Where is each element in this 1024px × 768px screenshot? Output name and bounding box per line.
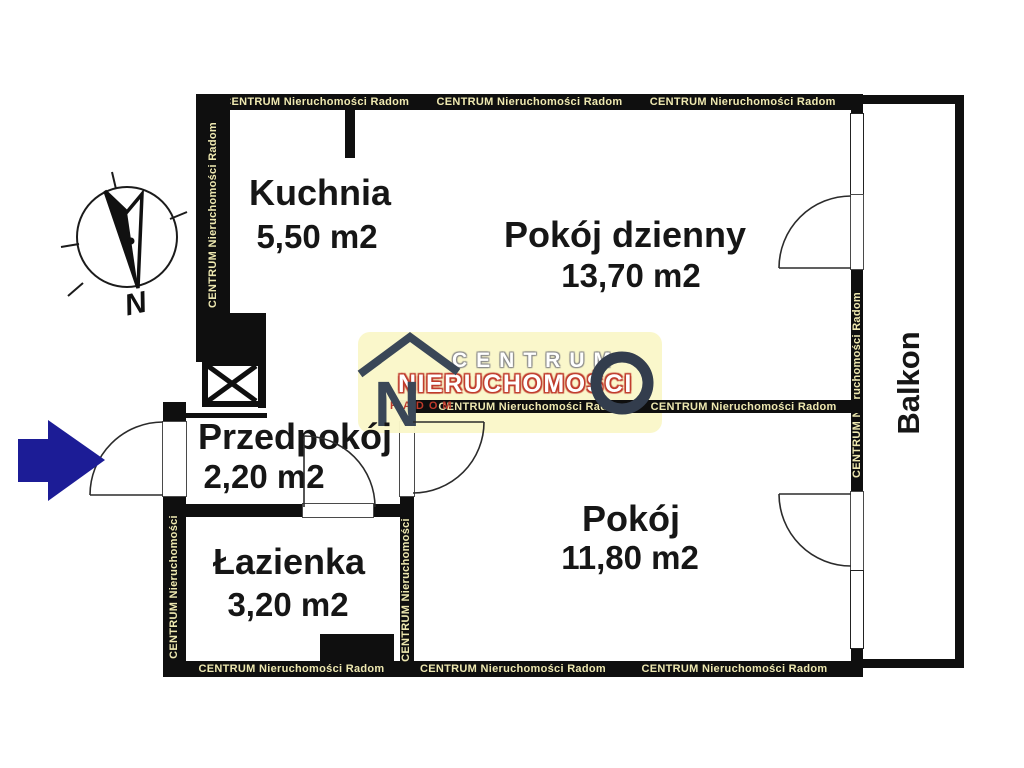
balcony-wall-top	[863, 95, 964, 104]
wall-right-top	[851, 94, 863, 113]
entrance-arrow-icon	[18, 420, 105, 501]
wall-right-bottom	[851, 648, 863, 661]
room-label-pokoj: Pokój	[582, 498, 680, 540]
room-label-przedpokoj: Przedpokój	[198, 416, 392, 458]
door-arc-entrance	[90, 422, 163, 495]
room-label-balkon: Balkon	[891, 331, 927, 434]
watermark-text: CENTRUM Nieruchomości Radom	[642, 663, 828, 675]
watermark-text: CENTRUM Nieruchomości Radom	[223, 96, 409, 108]
balcony-door-living-opening	[850, 194, 864, 270]
room-area-przedpokoj: 2,20 m2	[203, 458, 324, 496]
wall-bathroom-top	[186, 504, 413, 517]
balcony-wall-right	[955, 95, 964, 668]
watermark-vertical: CENTRUM Nieruchomości	[167, 504, 181, 670]
entrance-door-opening	[162, 421, 187, 497]
compass-north-label: N	[122, 285, 151, 322]
door-arc-balcony-living	[779, 196, 851, 268]
bathroom-door-opening	[302, 503, 374, 518]
door-arc-balcony-pokoj	[779, 494, 851, 566]
wall-top: CENTRUM Nieruchomości Radom CENTRUM Nier…	[196, 94, 863, 110]
watermark-vertical: CENTRUM Nieruchomości Radom	[206, 109, 220, 321]
watermark-text: CENTRUM Nieruchomości Radom	[651, 401, 837, 413]
room-area-pokoj-dzienny: 13,70 m2	[561, 257, 700, 295]
ventilation-shaft-box	[202, 360, 264, 407]
watermark-text: CENTRUM Nieruchomości Radom	[437, 96, 623, 108]
logo-city-text: RADOM	[390, 400, 457, 412]
logo-brand2-text: NIERUCHOMOŚCI	[398, 370, 633, 399]
room-label-pokoj-dzienny: Pokój dzienny	[504, 214, 746, 256]
window-pokoj	[850, 570, 864, 649]
compass-icon: N	[61, 172, 187, 322]
watermark-text: CENTRUM Nieruchomości Radom	[199, 663, 385, 675]
wall-divider-horizontal: CENTRUM Nieruchomości Radom CENTRUM Nier…	[412, 400, 863, 413]
room-area-lazienka: 3,20 m2	[227, 586, 348, 624]
watermark-text: CENTRUM Nieruchomości Radom	[420, 663, 606, 675]
watermark-text: CENTRUM Nieruchomości Radom	[650, 96, 836, 108]
floor-plan: CENTRUM Nieruchomości Radom CENTRUM Nier…	[0, 0, 1024, 768]
compass-needle-icon	[105, 191, 142, 288]
watermark-vertical: CENTRUM Nieruchomości	[399, 512, 413, 668]
watermark-text: CENTRUM Nieruchomości Radom	[438, 401, 624, 413]
window-living-room	[850, 113, 864, 195]
room-label-lazienka: Łazienka	[213, 541, 365, 583]
wall-bottom: CENTRUM Nieruchomości Radom CENTRUM Nier…	[163, 661, 863, 677]
bathroom-duct-block	[320, 634, 394, 661]
room-area-kuchnia: 5,50 m2	[256, 218, 377, 256]
balcony-wall-bottom	[863, 659, 964, 668]
wall-stub-kitchen	[345, 110, 355, 158]
watermark-vertical: CENTRUM Nieruchomości Radom	[850, 290, 864, 480]
room-area-pokoj: 11,80 m2	[561, 539, 699, 577]
room-label-kuchnia: Kuchnia	[249, 172, 391, 214]
balcony-door-pokoj-opening	[850, 491, 864, 571]
